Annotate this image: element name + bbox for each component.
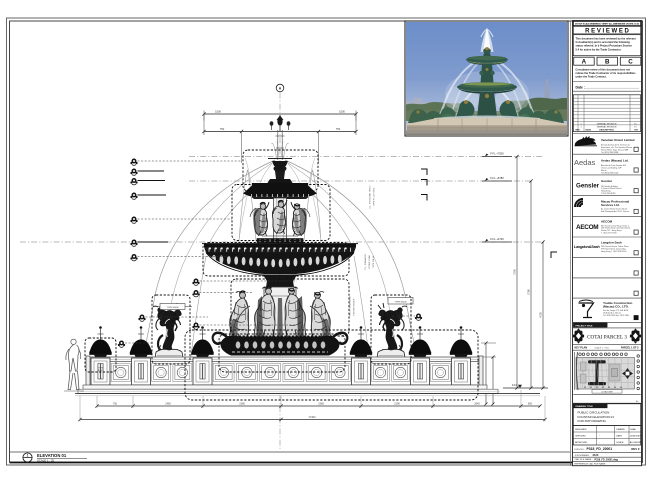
svg-text:TYPE ST-01 BRONZE: TYPE ST-01 BRONZE	[350, 296, 352, 318]
svg-text:DESIGNED: DESIGNED	[575, 429, 587, 431]
svg-text:DESCRIPTION: DESCRIPTION	[599, 130, 614, 132]
svg-text:GENERAL REVISION: GENERAL REVISION	[597, 122, 617, 125]
svg-text:1460: 1460	[165, 402, 171, 405]
svg-text:FIGURE GROUP: FIGURE GROUP	[354, 298, 356, 315]
svg-text:(Macau) CO., LTD.: (Macau) CO., LTD.	[603, 305, 629, 309]
svg-text:status referred. In b Project: status referred. In b Project Procedure …	[576, 44, 633, 48]
svg-text:CHAD: CHAD	[630, 428, 637, 431]
svg-text:750: 750	[113, 402, 118, 405]
svg-text:DRAWN: DRAWN	[616, 428, 625, 431]
svg-text:Tel: (853) 2833 1022: Tel: (853) 2833 1022	[601, 172, 618, 174]
svg-text:REV: REV	[576, 130, 581, 132]
svg-text:Tel: 2878 1830 Fax: 2878 1835: Tel: 2878 1830 Fax: 2878 1835	[603, 315, 629, 317]
svg-text:600: 600	[528, 402, 533, 405]
svg-text:AS SHOWN: AS SHOWN	[630, 441, 642, 444]
svg-text:COTAI STRIP: COTAI STRIP	[601, 390, 613, 393]
svg-text:C.L. PINNACLE: C.L. PINNACLE	[364, 254, 367, 270]
svg-text:Hong Kong T +852 2830 3500: Hong Kong T +852 2830 3500	[601, 251, 626, 253]
svg-text:DWG NO :: DWG NO :	[575, 449, 586, 451]
svg-text:REV 0: REV 0	[631, 447, 640, 451]
svg-text:F.F.L: F.F.L	[512, 383, 518, 387]
svg-text:F.F.L +4730: F.F.L +4730	[490, 237, 504, 241]
svg-text:1500: 1500	[339, 110, 345, 114]
svg-text:Aedas: Aedas	[574, 158, 596, 167]
svg-text:Gensler: Gensler	[601, 179, 613, 183]
svg-text:AECOM: AECOM	[601, 220, 613, 224]
svg-text:AECOM: AECOM	[576, 224, 598, 231]
svg-text:TYPE GB-01: TYPE GB-01	[373, 255, 375, 268]
svg-text:F.F.L +7500: F.F.L +7500	[490, 151, 504, 155]
svg-text:P318_FD_20001: P318_FD_20001	[587, 447, 613, 451]
svg-text:DRAWING TITLE: DRAWING TITLE	[576, 405, 594, 408]
svg-text:relieve the Trade Contractor o: relieve the Trade Contractor of its resp…	[576, 71, 637, 75]
svg-text:JOB NUMBER :: JOB NUMBER :	[575, 455, 591, 457]
svg-text:This document has been reviewe: This document has been reviewed by the r…	[576, 37, 636, 41]
svg-text:4730: 4730	[538, 312, 542, 318]
svg-text:SCALE 1 : 7500: SCALE 1 : 7500	[595, 347, 610, 350]
svg-text:DATE: DATE	[616, 434, 622, 437]
svg-text:5780: 5780	[526, 289, 530, 295]
svg-text:Venetian Orient Limited: Venetian Orient Limited	[601, 138, 635, 142]
svg-text:APPROVED: APPROVED	[575, 441, 588, 444]
svg-text:PROJECT TITLE: PROJECT TITLE	[576, 325, 594, 327]
svg-text:SCALE 1 : 25: SCALE 1 : 25	[37, 459, 54, 463]
svg-text:B: B	[605, 59, 610, 66]
svg-text:TYPE SH-04: TYPE SH-04	[167, 307, 180, 309]
svg-text:C.L. FOUNTAIN TIER 2: C.L. FOUNTAIN TIER 2	[369, 185, 372, 209]
svg-text:Consultant review of this docu: Consultant review of this document does …	[576, 67, 631, 71]
svg-text:750: 750	[336, 127, 341, 131]
svg-text:under the Trade Contract.: under the Trade Contract.	[576, 75, 607, 79]
svg-text:SCALE: SCALE	[616, 441, 624, 444]
svg-text:CHECKED: CHECKED	[575, 435, 586, 437]
svg-text:A: A	[582, 59, 587, 66]
svg-text:TYPE SH-04: TYPE SH-04	[395, 301, 408, 303]
svg-text:Langdon Seah: Langdon Seah	[601, 240, 622, 244]
svg-text:Tel: (853) 2882 8888: Tel: (853) 2882 8888	[601, 152, 618, 154]
svg-text:CAD FILE NAME :: CAD FILE NAME :	[575, 458, 593, 461]
svg-text:C: C	[628, 59, 633, 66]
svg-text:FOR FRP DRAWING: FOR FRP DRAWING	[578, 419, 607, 423]
svg-text:Gensler: Gensler	[576, 183, 600, 190]
svg-text:2368: 2368	[318, 402, 324, 405]
svg-text:TYPE FT-02 / GRC: TYPE FT-02 / GRC	[374, 187, 376, 206]
svg-text:Services Ltd.: Services Ltd.	[601, 203, 620, 207]
svg-text:5.4 for action by the Trade Co: 5.4 for action by the Trade Contractor.	[576, 47, 622, 51]
svg-text:Date :: Date :	[576, 86, 585, 90]
svg-text:GENERAL REVISION: GENERAL REVISION	[597, 126, 617, 129]
svg-text:1500: 1500	[215, 110, 221, 114]
svg-text:Edif. Montepio Apt. 26-27, Mac: Edif. Montepio Apt. 26-27, Macau	[601, 210, 629, 213]
svg-text:COTAI PARCEL 3: COTAI PARCEL 3	[587, 334, 627, 340]
svg-text:Consultants(s) and is accorded: Consultants(s) and is accorded the follo…	[576, 40, 631, 44]
svg-text:750: 750	[220, 127, 225, 131]
svg-text:7500: 7500	[512, 269, 516, 275]
svg-text:ELEVATION 01: ELEVATION 01	[37, 453, 67, 458]
svg-text:Langdon&Seah: Langdon&Seah	[574, 245, 600, 249]
svg-text:T +852 2317 7600: T +852 2317 7600	[601, 233, 616, 235]
svg-text:2190: 2190	[394, 402, 400, 405]
svg-text:STONE CLAD: STONE CLAD	[368, 255, 371, 269]
svg-text:2368: 2368	[239, 402, 245, 405]
svg-text:KEY PLAN: KEY PLAN	[575, 347, 588, 350]
svg-text:REFERENCE CAD FILE NAME :: REFERENCE CAD FILE NAME :	[575, 463, 607, 466]
svg-text:10/04/2016: 10/04/2016	[630, 435, 642, 437]
svg-text:P318_FD_20001.dwg: P318_FD_20001.dwg	[595, 458, 619, 461]
svg-text:DATE: DATE	[586, 129, 592, 132]
svg-text:DO NOT SCALE DRAWINGS. VERIFY: DO NOT SCALE DRAWINGS. VERIFY ALL DIMENS…	[575, 23, 640, 26]
svg-text:R E V I E W E D: R E V I E W E D	[585, 28, 629, 34]
svg-text:Aedas (Macau) Ltd.: Aedas (Macau) Ltd.	[601, 158, 629, 162]
svg-text:3123: 3123	[593, 453, 599, 457]
svg-text:17460: 17460	[309, 416, 317, 419]
svg-text:1: 1	[27, 453, 29, 457]
svg-text:F.F.L +5780: F.F.L +5780	[490, 176, 504, 180]
svg-text:PARCEL 1 OF 3: PARCEL 1 OF 3	[621, 347, 639, 350]
svg-text:2640: 2640	[474, 402, 480, 405]
svg-text:T 852.2599.8788: T 852.2599.8788	[601, 193, 615, 195]
